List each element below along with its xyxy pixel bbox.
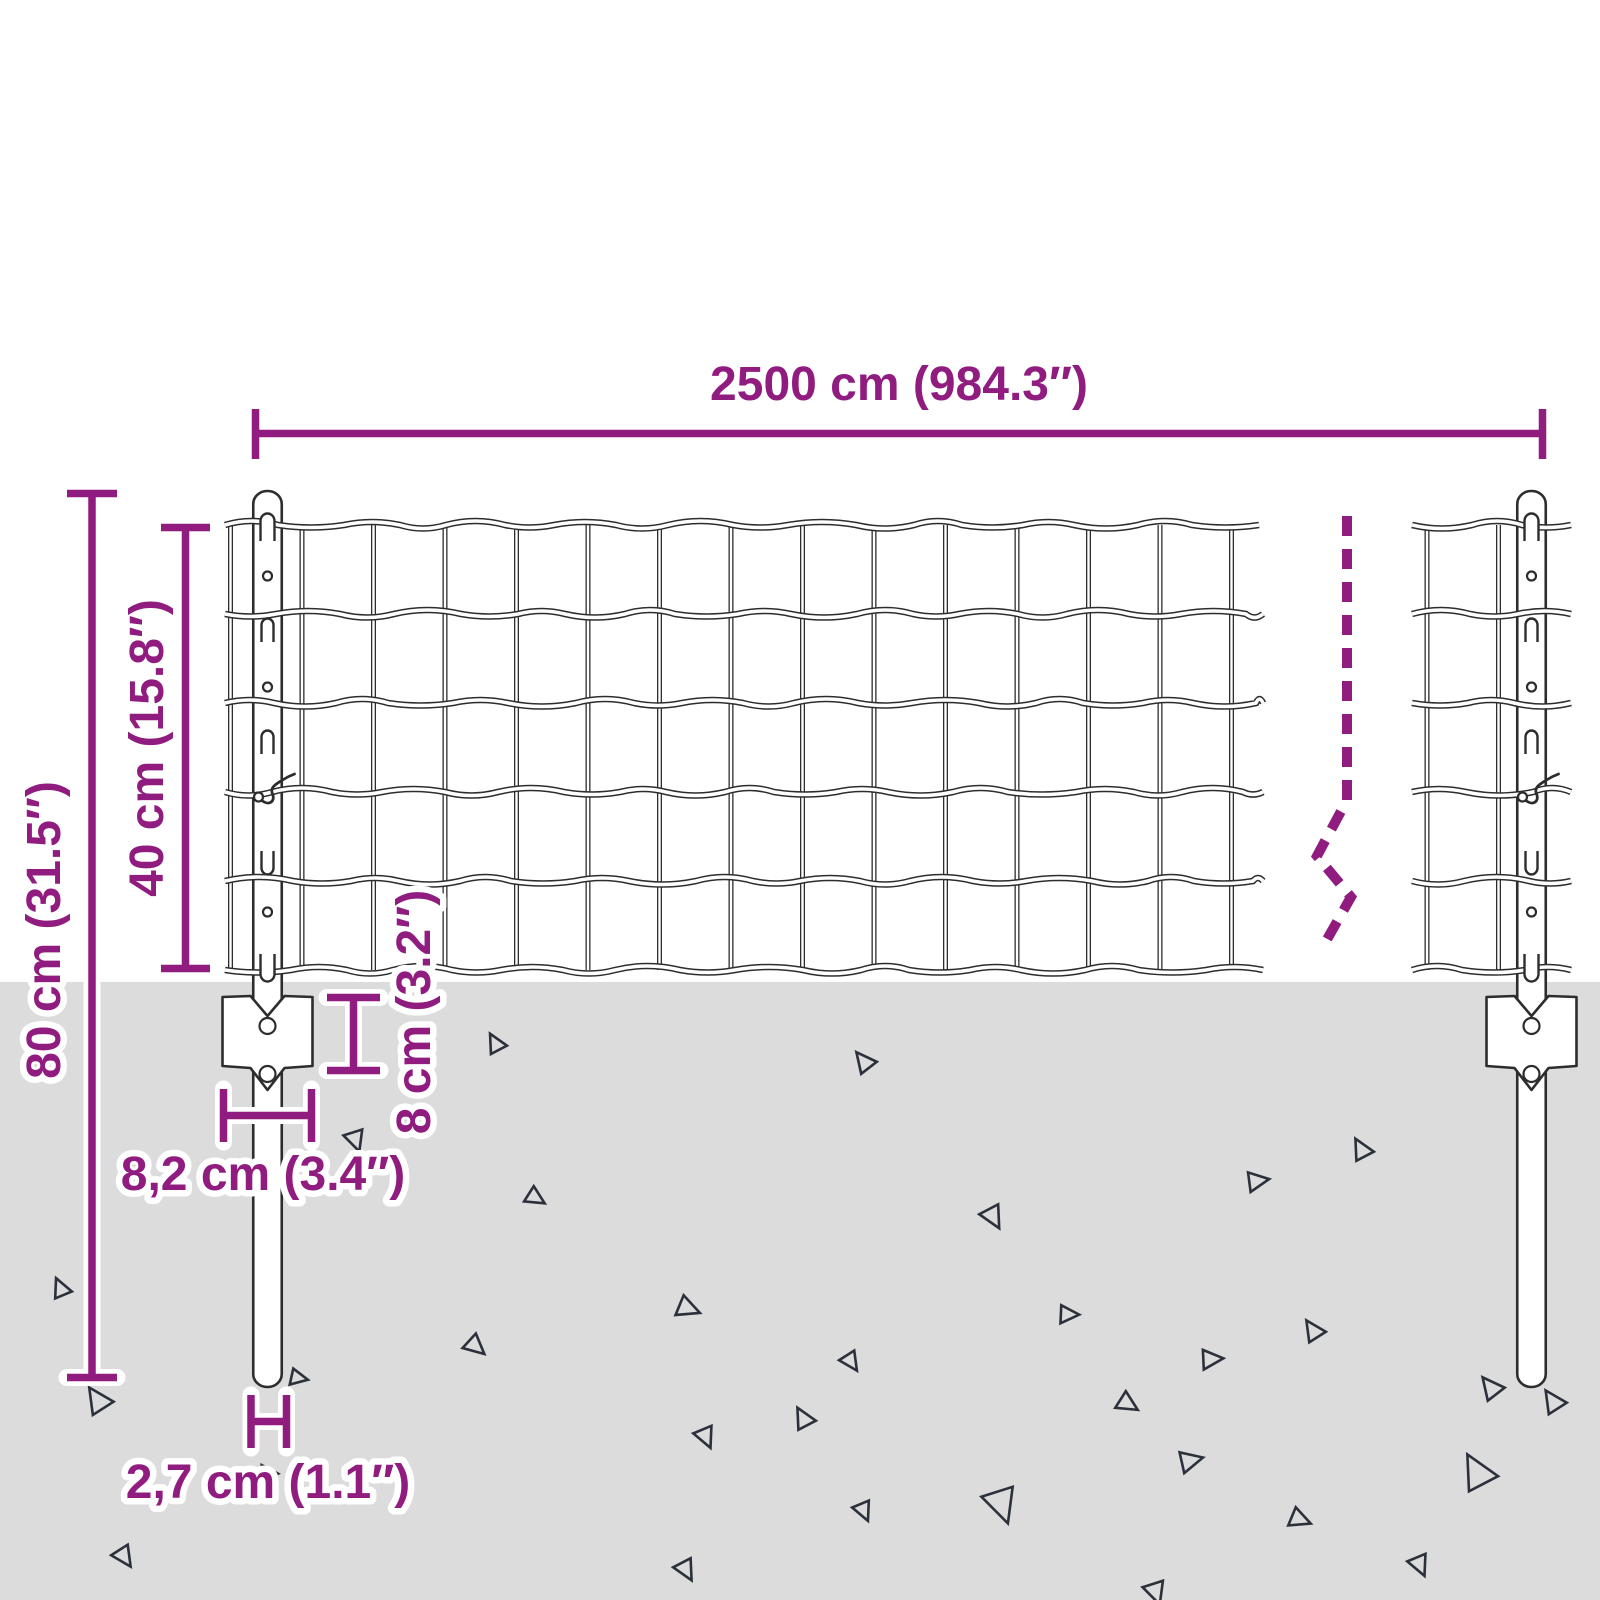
dimension-label-post-height: 80 cm (31.5″) [18, 781, 71, 1079]
post-hook-slot [261, 954, 275, 982]
post-slot [1526, 851, 1538, 875]
post-hole [263, 683, 272, 692]
dimension-label-mesh-opening: 8 cm (3.2″) [388, 890, 441, 1134]
fence-dimension-diagram: 2500 cm (984.3″) 80 cm (31.5″) 40 cm (15… [0, 0, 1600, 1600]
anchor-plate-hole [260, 1018, 276, 1034]
anchor-plate-hole [260, 1066, 276, 1082]
diagram-canvas: 2500 cm (984.3″) 80 cm (31.5″) 40 cm (15… [0, 0, 1600, 1600]
post-hole [1527, 683, 1536, 692]
post-hole [1527, 572, 1536, 581]
post-slot [262, 619, 274, 643]
dimension-label-mesh-height: 40 cm (15.8″) [121, 599, 174, 897]
dimension-label-post-diameter: 2,7 cm (1.1″) [126, 1456, 410, 1509]
post-slot [262, 851, 274, 875]
post-slot [1526, 731, 1538, 754]
post-hook-slot [1525, 514, 1539, 542]
post-slot [262, 731, 274, 754]
dimension-label-total-width: 2500 cm (984.3″) [710, 358, 1088, 411]
post-hole [263, 572, 272, 581]
post-hook-slot [1525, 954, 1539, 982]
anchor-plate-hole [1524, 1066, 1540, 1082]
post-hole [263, 908, 272, 917]
anchor-plate-hole [1524, 1018, 1540, 1034]
dimension-label-bracket-width: 8,2 cm (3.4″) [121, 1148, 405, 1201]
post-slot [1526, 619, 1538, 643]
post-hole [1527, 908, 1536, 917]
post-hook-slot [261, 514, 275, 542]
